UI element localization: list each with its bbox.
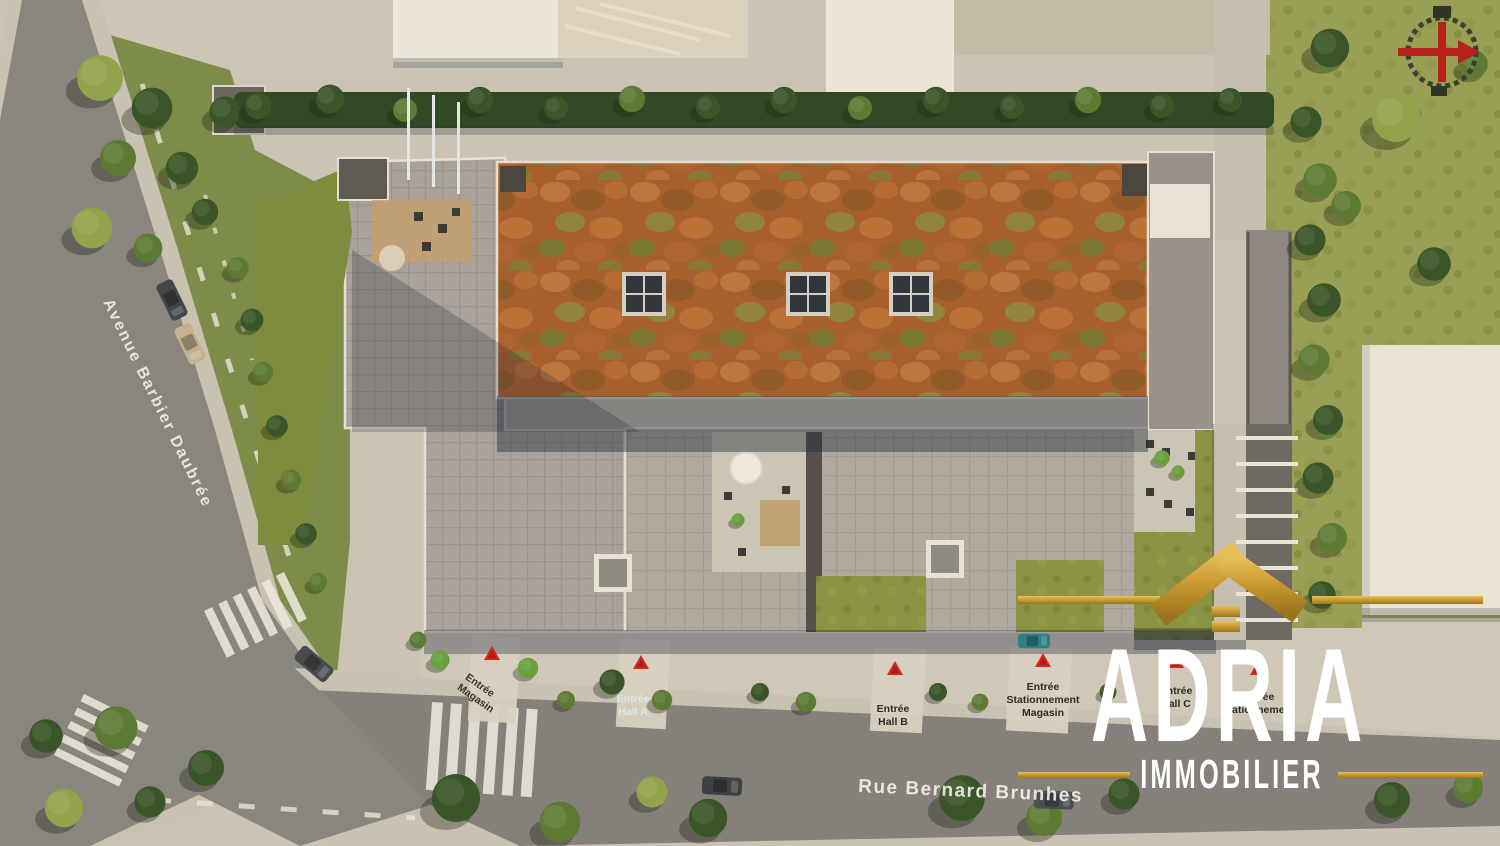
compass-needle-horizontal [1398, 48, 1462, 56]
svg-text:Hall B: Hall B [878, 716, 908, 728]
roof-terrace-furniture [372, 200, 472, 271]
svg-text:Entrée: Entrée [1027, 681, 1060, 693]
white-building-east [1362, 345, 1500, 622]
aerial-site-plan: Avenue Barbier Daubrée Rue Bernard Brunh… [0, 0, 1500, 846]
brand-name: ADRIA [1091, 622, 1368, 770]
roof-lawn-1 [816, 576, 926, 632]
svg-text:Magasin: Magasin [1022, 707, 1064, 719]
svg-text:Entrée: Entrée [877, 703, 910, 715]
brand-tagline: IMMOBILIER [1140, 752, 1324, 798]
svg-text:Stationnement: Stationnement [1007, 694, 1080, 706]
svg-text:Hall A: Hall A [618, 706, 648, 718]
svg-text:Entrée: Entrée [617, 693, 650, 705]
site-plan-canvas: Avenue Barbier Daubrée Rue Bernard Brunh… [0, 0, 1500, 846]
